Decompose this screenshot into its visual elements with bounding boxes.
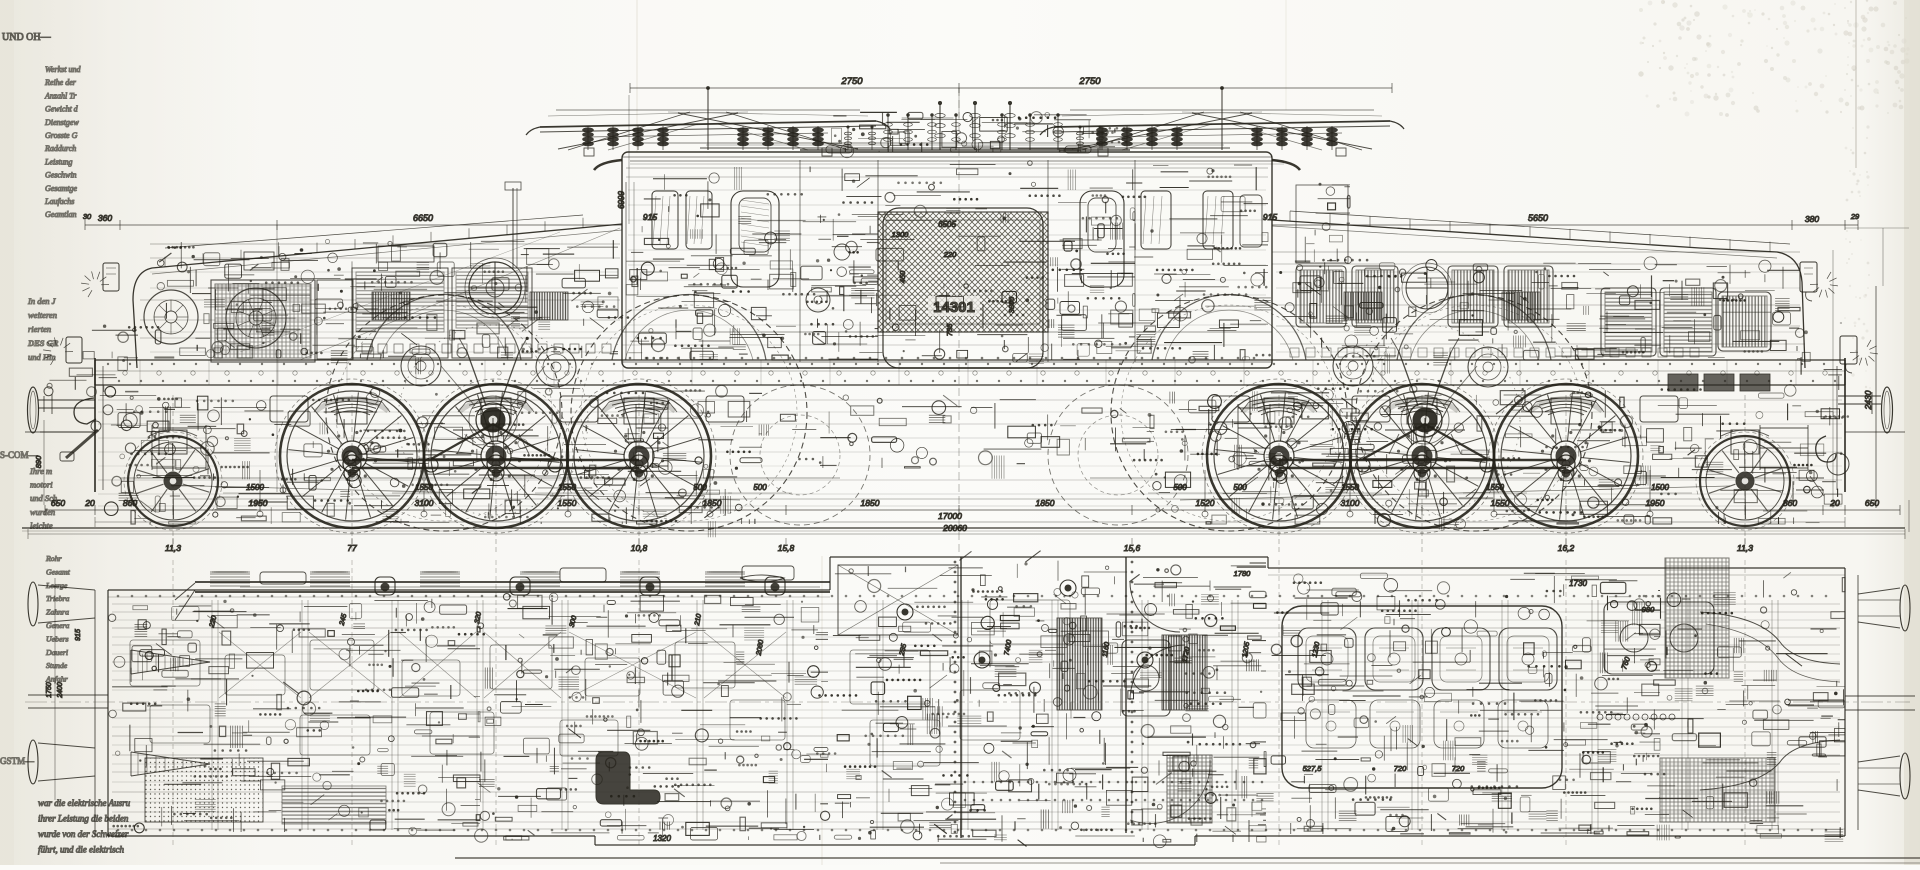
svg-text:S-COM—: S-COM—	[0, 450, 39, 460]
svg-text:15,6: 15,6	[1124, 543, 1141, 553]
svg-text:rierten: rierten	[28, 324, 51, 334]
svg-text:6999: 6999	[617, 191, 626, 209]
svg-text:720: 720	[1394, 764, 1407, 773]
svg-text:650: 650	[51, 498, 65, 508]
svg-text:1780: 1780	[1234, 569, 1252, 578]
svg-text:Raddurch: Raddurch	[44, 144, 76, 153]
svg-text:720: 720	[1452, 764, 1465, 773]
svg-text:1850: 1850	[1036, 498, 1055, 508]
svg-text:1850: 1850	[703, 498, 722, 508]
svg-text:Rohr: Rohr	[45, 554, 63, 563]
svg-text:735: 735	[945, 323, 954, 336]
svg-text:GSTM—: GSTM—	[0, 756, 35, 766]
svg-text:3100: 3100	[1341, 498, 1360, 508]
svg-text:860: 860	[123, 498, 137, 508]
svg-text:29: 29	[1850, 212, 1860, 221]
svg-text:890: 890	[34, 455, 43, 468]
svg-text:wurde von der Schweizer: wurde von der Schweizer	[38, 829, 129, 839]
svg-text:1550: 1550	[415, 483, 433, 492]
svg-text:1550: 1550	[1341, 483, 1359, 492]
svg-text:2430: 2430	[1863, 390, 1873, 410]
svg-text:UND OH—: UND OH—	[2, 32, 52, 43]
svg-text:16,2: 16,2	[1558, 543, 1575, 553]
svg-text:wurden: wurden	[30, 507, 55, 517]
svg-text:380: 380	[1805, 214, 1819, 224]
svg-text:Anzahl Tr: Anzahl Tr	[44, 91, 77, 100]
svg-text:980: 980	[1642, 605, 1655, 614]
svg-text:10,8: 10,8	[631, 543, 648, 553]
svg-text:14301: 14301	[933, 299, 975, 316]
svg-text:20: 20	[84, 498, 95, 508]
svg-text:20: 20	[1829, 498, 1840, 508]
svg-text:Leerge: Leerge	[45, 581, 68, 590]
svg-text:915: 915	[643, 212, 657, 222]
svg-text:1550: 1550	[1491, 498, 1510, 508]
svg-text:915: 915	[75, 629, 82, 641]
svg-text:Geschwin: Geschwin	[45, 171, 77, 180]
svg-text:2750: 2750	[840, 76, 863, 87]
svg-text:war die elektrische Ausru: war die elektrische Ausru	[38, 798, 131, 808]
svg-text:500: 500	[753, 483, 767, 492]
svg-text:11,3: 11,3	[165, 543, 181, 553]
svg-text:1520: 1520	[1196, 498, 1215, 508]
svg-text:Werkst und: Werkst und	[45, 65, 81, 74]
svg-text:1550: 1550	[558, 483, 576, 492]
svg-text:führt, und die elektrisch: führt, und die elektrisch	[38, 845, 124, 855]
svg-text:2750: 2750	[1078, 76, 1101, 87]
svg-text:860: 860	[1783, 498, 1797, 508]
svg-text:2400: 2400	[57, 682, 64, 699]
svg-text:30: 30	[83, 212, 92, 221]
svg-text:17000: 17000	[938, 511, 962, 521]
svg-text:1950: 1950	[249, 498, 268, 508]
svg-text:1550: 1550	[1486, 483, 1504, 492]
svg-text:motori: motori	[30, 480, 53, 490]
svg-text:Laufachs: Laufachs	[44, 197, 74, 206]
svg-text:450: 450	[898, 270, 907, 283]
svg-text:Uebers: Uebers	[46, 634, 69, 643]
svg-text:220: 220	[943, 250, 957, 259]
svg-text:Gewicht d: Gewicht d	[45, 105, 79, 114]
svg-text:11,3: 11,3	[1737, 543, 1753, 553]
svg-text:915: 915	[1263, 212, 1277, 222]
svg-text:Reihe der: Reihe der	[44, 78, 77, 87]
svg-text:Gesamtge: Gesamtge	[45, 184, 77, 193]
svg-text:360: 360	[98, 213, 112, 223]
svg-text:Triebra: Triebra	[46, 594, 69, 603]
svg-text:Zahnra: Zahnra	[46, 608, 69, 617]
svg-text:leichte: leichte	[30, 520, 53, 530]
svg-text:1950: 1950	[1646, 498, 1665, 508]
svg-text:5650: 5650	[1528, 213, 1548, 223]
svg-text:und Hin: und Hin	[28, 352, 56, 362]
svg-text:3100: 3100	[415, 498, 434, 508]
svg-text:Geamtlan: Geamtlan	[45, 210, 77, 219]
svg-text:DES GR: DES GR	[27, 338, 59, 348]
svg-text:6650: 6650	[413, 213, 433, 223]
svg-text:3806: 3806	[1007, 296, 1016, 314]
svg-text:Leistung: Leistung	[44, 157, 73, 166]
svg-text:Grosste G: Grosste G	[45, 131, 78, 140]
svg-text:1550: 1550	[558, 498, 577, 508]
svg-text:1320: 1320	[653, 834, 671, 843]
svg-text:Dauerl: Dauerl	[45, 648, 68, 657]
svg-text:6505: 6505	[938, 220, 956, 229]
svg-text:1730: 1730	[1569, 579, 1587, 588]
svg-text:1850: 1850	[861, 498, 880, 508]
svg-text:650: 650	[1865, 498, 1879, 508]
svg-text:77: 77	[347, 543, 357, 553]
svg-text:1300: 1300	[892, 230, 910, 239]
svg-text:In den J: In den J	[27, 296, 57, 306]
svg-text:Dienstgew: Dienstgew	[44, 118, 79, 127]
svg-text:20060: 20060	[942, 523, 967, 533]
svg-text:1750: 1750	[46, 682, 53, 698]
svg-text:weiteren: weiteren	[28, 310, 57, 320]
svg-text:500: 500	[1233, 483, 1247, 492]
svg-text:15,8: 15,8	[778, 543, 795, 553]
svg-text:Stunde: Stunde	[46, 661, 68, 670]
svg-text:527,5: 527,5	[1303, 764, 1323, 773]
svg-text:1500: 1500	[1651, 483, 1669, 492]
svg-text:1500: 1500	[246, 483, 264, 492]
svg-text:500: 500	[1173, 483, 1187, 492]
svg-text:Gesamt: Gesamt	[46, 567, 71, 576]
svg-text:500: 500	[693, 483, 707, 492]
